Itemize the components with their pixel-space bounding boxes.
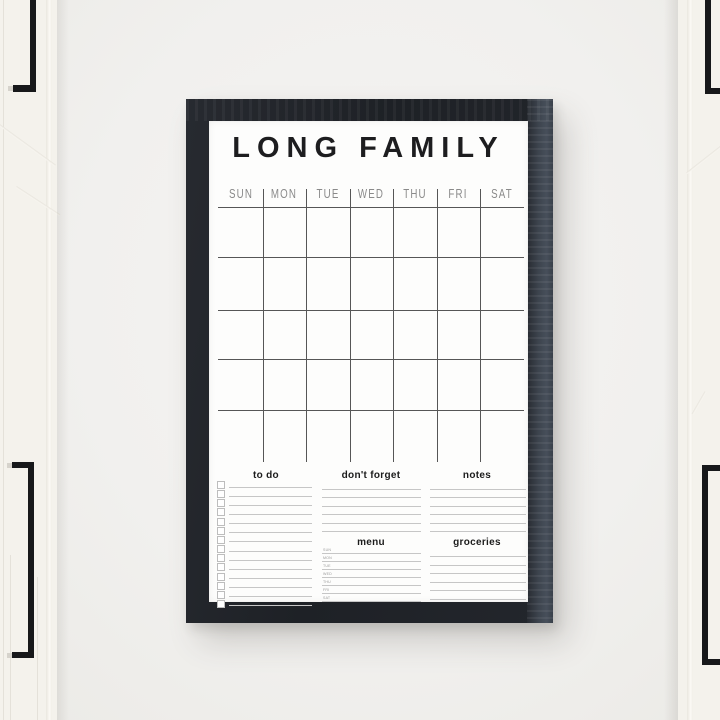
todo-checkbox: [217, 481, 225, 489]
menu-rule-line: [322, 585, 421, 586]
grid-vline: [306, 189, 307, 462]
todo-checkbox: [217, 600, 225, 608]
todo-checkbox: [217, 554, 225, 562]
left-door-bevel: [16, 186, 61, 216]
dont-forget-rule-line: [322, 531, 421, 532]
dont-forget-rule-line: [322, 497, 421, 498]
notes-rule-line: [430, 497, 526, 498]
right-door-mid-handle: [702, 465, 708, 665]
menu-day-label: THU: [323, 580, 331, 584]
todo-checkbox: [217, 499, 225, 507]
dont-forget-rule-line: [322, 489, 421, 490]
menu-section-title: menu: [321, 537, 421, 548]
groceries-rule-line: [430, 599, 526, 600]
groceries-rule-line: [430, 573, 526, 574]
grid-vline: [393, 189, 394, 462]
todo-rule-line: [229, 569, 312, 570]
todo-checkbox: [217, 573, 225, 581]
groceries-section-title: groceries: [427, 537, 527, 548]
left-door-top-handle-bracket: [13, 85, 36, 92]
menu-day-label: MON: [323, 556, 332, 560]
todo-rule-line: [229, 505, 312, 506]
left-door-top-handle: [30, 0, 36, 92]
dont-forget-rule-line: [322, 514, 421, 515]
notes-rule-line: [430, 523, 526, 524]
groceries-rule-line: [430, 556, 526, 557]
todo-checkbox: [217, 490, 225, 498]
handle-mount: [8, 86, 13, 91]
todo-rule-line: [229, 496, 312, 497]
grid-vline: [350, 189, 351, 462]
menu-rule-line: [322, 561, 421, 562]
notes-rule-line: [430, 514, 526, 515]
todo-rule-line: [229, 551, 312, 552]
groceries-rule-line: [430, 582, 526, 583]
menu-day-label: FRI: [323, 588, 329, 592]
todo-rule-line: [229, 487, 312, 488]
grid-vline: [480, 189, 481, 462]
todo-checkbox: [217, 518, 225, 526]
todo-checkbox: [217, 508, 225, 516]
todo-checkbox: [217, 545, 225, 553]
left-door-panel-line: [37, 577, 38, 720]
menu-rule-line: [322, 577, 421, 578]
left-door-edge-highlight: [46, 0, 52, 720]
notes-rule-line: [430, 489, 526, 490]
grid-vline: [437, 189, 438, 462]
menu-day-label: TUE: [323, 564, 331, 568]
left-door-lower-handle-bracket: [12, 652, 34, 658]
dont-forget-rule-line: [322, 506, 421, 507]
dont-forget-section-title: don't forget: [321, 470, 421, 481]
right-door-mid-handle-bracket: [702, 465, 720, 471]
right-door-bevel: [692, 391, 707, 415]
menu-day-label: SAT: [323, 596, 330, 600]
notes-section-title: notes: [427, 470, 527, 481]
todo-rule-line: [229, 514, 312, 515]
day-label: TUE: [312, 187, 343, 201]
todo-section-title: to do: [216, 470, 316, 481]
todo-rule-line: [229, 587, 312, 588]
todo-checkbox: [217, 536, 225, 544]
groceries-rule-line: [430, 590, 526, 591]
todo-rule-line: [229, 605, 312, 606]
right-door-top-handle-bracket: [705, 88, 720, 94]
todo-rule-line: [229, 532, 312, 533]
calendar-frame: LONG FAMILY SUNMONTUEWEDTHUFRISAT to do …: [186, 99, 553, 623]
menu-rule-line: [322, 569, 421, 570]
notes-rule-line: [430, 531, 526, 532]
photo-scene: LONG FAMILY SUNMONTUEWEDTHUFRISAT to do …: [0, 0, 720, 720]
left-door-panel-line: [10, 555, 11, 720]
day-label: SAT: [486, 187, 517, 201]
todo-checkbox: [217, 582, 225, 590]
day-label: FRI: [443, 187, 474, 201]
groceries-rule-line: [430, 565, 526, 566]
right-door-mid-handle-bracket: [702, 659, 720, 665]
todo-checkbox: [217, 527, 225, 535]
right-door-reveal-shadow: [664, 0, 678, 720]
todo-rule-line: [229, 596, 312, 597]
right-door-top-handle: [705, 0, 711, 94]
menu-rule-line: [322, 593, 421, 594]
menu-day-label: WED: [323, 572, 332, 576]
day-label: THU: [399, 187, 430, 201]
todo-rule-line: [229, 541, 312, 542]
day-label: WED: [356, 187, 387, 201]
calendar-board: LONG FAMILY SUNMONTUEWEDTHUFRISAT to do …: [209, 121, 528, 602]
menu-rule-line: [322, 553, 421, 554]
notes-rule-line: [430, 506, 526, 507]
todo-rule-line: [229, 523, 312, 524]
right-door: [678, 0, 720, 720]
left-door-lower-handle-bracket: [12, 462, 34, 468]
day-label: SUN: [225, 187, 256, 201]
left-door-seam: [3, 0, 4, 720]
todo-checkbox: [217, 563, 225, 571]
menu-day-label: SUN: [323, 548, 331, 552]
todo-rule-line: [229, 578, 312, 579]
board-title: LONG FAMILY: [209, 132, 528, 165]
left-door-lower-handle: [28, 462, 34, 658]
left-door-reveal-shadow: [57, 0, 69, 720]
todo-rule-line: [229, 560, 312, 561]
grid-vline: [263, 189, 264, 462]
handle-mount: [7, 653, 12, 658]
todo-checkbox: [217, 591, 225, 599]
right-door-edge-highlight: [687, 0, 693, 720]
day-label: MON: [269, 187, 300, 201]
menu-rule-line: [322, 601, 421, 602]
handle-mount: [7, 463, 12, 468]
dont-forget-rule-line: [322, 523, 421, 524]
left-door: [0, 0, 57, 720]
